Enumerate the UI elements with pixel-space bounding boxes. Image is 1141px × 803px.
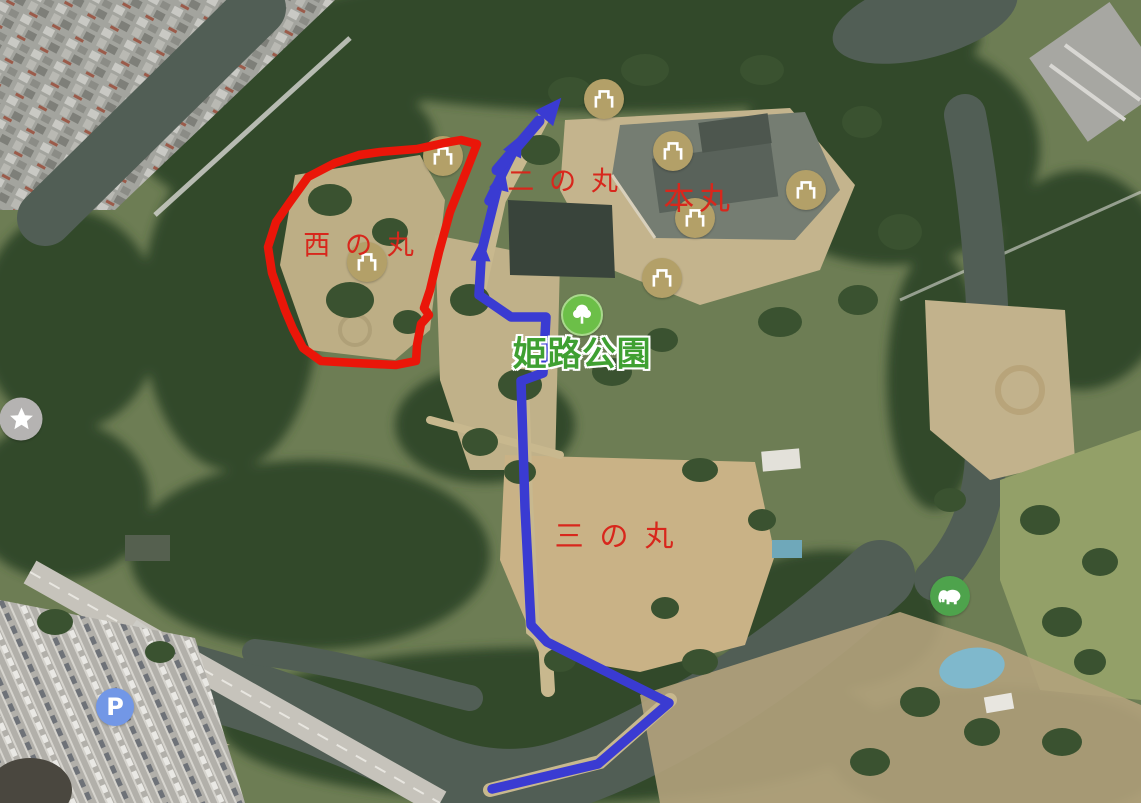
tree-icon [569, 302, 595, 328]
park-poi-marker[interactable] [561, 294, 603, 336]
favorite-poi-marker[interactable] [0, 398, 43, 441]
label-ninomaru: 二の丸 [507, 160, 633, 199]
label-nishinomaru: 西の丸 [303, 224, 429, 263]
route-annotations [0, 0, 1141, 803]
star-icon [7, 405, 35, 433]
label-sannomaru: 三の丸 [555, 513, 690, 555]
zoo-poi-marker[interactable] [930, 576, 970, 616]
map-canvas[interactable]: 西の丸 二の丸 本丸 三の丸 姫路公園 P [0, 0, 1141, 803]
parking-icon: P [106, 693, 124, 721]
elephant-icon [937, 583, 964, 610]
label-honmaru: 本丸 [663, 174, 734, 219]
parking-poi-marker[interactable]: P [96, 688, 134, 726]
